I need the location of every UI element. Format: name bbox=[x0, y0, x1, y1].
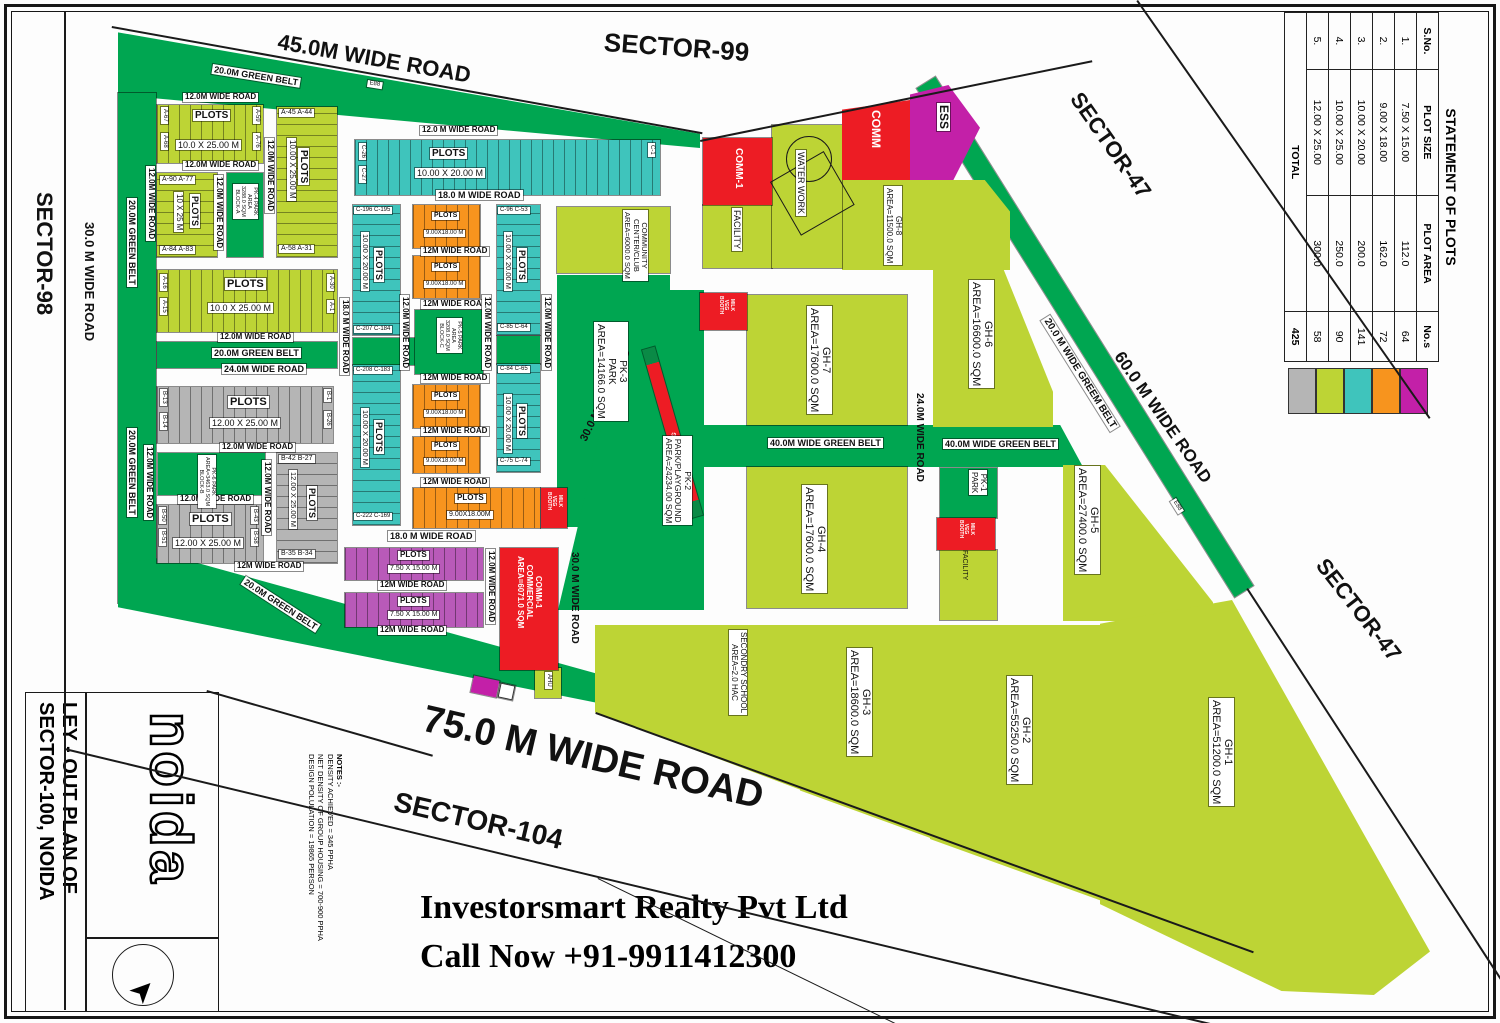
label-a-90-a-77: A-90 A-77 bbox=[160, 176, 195, 184]
cell: 7.50 X 15.00 bbox=[1395, 69, 1417, 195]
label-gh-1: GH-1 AREA=51200.0 SQM bbox=[1209, 698, 1234, 806]
label-sector-47: SECTOR-47 bbox=[1065, 88, 1156, 203]
plots-c-top bbox=[355, 140, 660, 195]
label-milk: MILK VEG BOOTH bbox=[717, 296, 734, 314]
cell: 200.0 bbox=[1351, 195, 1373, 312]
label-9-00x18-00m: 9.00X18.00M bbox=[447, 511, 493, 519]
plot-type-legend bbox=[1288, 368, 1428, 414]
label-b-14: B-14 bbox=[160, 413, 167, 430]
community-center bbox=[557, 207, 670, 273]
cell: 2. bbox=[1373, 13, 1395, 70]
notes-items: DENSITY ACHIEVED = 345 PPHANET DENSITY O… bbox=[307, 754, 335, 1004]
col-s-no: S.No. bbox=[1417, 13, 1439, 70]
cell: 90 bbox=[1329, 312, 1351, 362]
label-10-00-x-20-00-m: 10.00 X 20.00 M bbox=[415, 168, 485, 178]
label-9-00x18-00-m: 9.00X18.00 M bbox=[424, 230, 465, 237]
cell: 10.00 X 25.00 bbox=[1329, 69, 1351, 195]
watermark-company: Investorsmart Realty Pvt Ltd bbox=[420, 883, 848, 932]
cell: 250.0 bbox=[1329, 195, 1351, 312]
label-10-x-25-m: 10 X 25 M bbox=[174, 192, 183, 232]
label-20-0m-green-belt: 20.0M GREEN BELT bbox=[127, 198, 137, 287]
label-c-75-c-74: C-75 C-74 bbox=[498, 458, 530, 465]
label-12m-wide-road: 12M WIDE ROAD bbox=[421, 300, 489, 309]
label-b-35-b-34: B-35 B-34 bbox=[279, 550, 315, 558]
label-9-00x18-00-m: 9.00X18.00 M bbox=[424, 281, 465, 288]
cell: 3. bbox=[1351, 13, 1373, 70]
label-c-84-c-65: C-84 C-65 bbox=[498, 366, 530, 373]
label-12-00-x-25-00-m: 12.00 X 25.00 M bbox=[289, 470, 297, 529]
label-10-00-x-20-00-m: 10.00 X 20.00 M bbox=[504, 232, 512, 291]
label-40-0m-wide-green-belt: 40.0M WIDE GREEN BELT bbox=[943, 439, 1058, 449]
label-gh-7: GH-7 AREA=17600.0 SQM bbox=[807, 306, 832, 414]
label-12m-wide-road: 12M WIDE ROAD bbox=[421, 427, 489, 436]
gh-4 bbox=[747, 467, 907, 608]
label-gh-4: GH-4 AREA=17600.0 SQM bbox=[802, 485, 827, 593]
label-a-1: A-1 bbox=[327, 300, 334, 313]
label-a-16: A-16 bbox=[160, 274, 167, 291]
label-sector-104: SECTOR-104 bbox=[391, 786, 566, 855]
label-b-50: B-50 bbox=[159, 507, 166, 524]
table-row: 1.7.50 X 15.00112.064 bbox=[1395, 13, 1417, 362]
label-10-00-x-20-00-m: 10.00 X 20.00 M bbox=[361, 232, 369, 291]
label-10-00-x-20-00-m: 10.00 X 20.00 M bbox=[504, 394, 512, 453]
label-12-0m-wide-road: 12.0M WIDE ROAD bbox=[183, 93, 258, 102]
plots-table: S.No.PLOT SIZEPLOT AREANo.s 1.7.50 X 15.… bbox=[1284, 12, 1439, 362]
label-12-0-m-wide-road: 12.0 M WIDE ROAD bbox=[420, 126, 497, 135]
label-c-222-c-169: C-222 C-169 bbox=[354, 513, 392, 520]
label-c-1: C-1 bbox=[648, 143, 655, 157]
label-c-85-c-64: C-85 C-64 bbox=[498, 324, 530, 331]
label-gh-3: GH-3 AREA=18600.0 SQM bbox=[847, 648, 872, 756]
label-plots: PLOTS bbox=[432, 442, 459, 450]
label-plots: PLOTS bbox=[225, 278, 266, 290]
cell: 10.00 X 20.00 bbox=[1351, 69, 1373, 195]
label-plots: PLOTS bbox=[190, 194, 200, 228]
label-12-00-x-25-00-m: 12.00 X 25.00 M bbox=[210, 418, 280, 428]
label-plots: PLOTS bbox=[517, 248, 527, 282]
label-plots: PLOTS bbox=[517, 404, 527, 438]
label-c-196-c-195: C-196 C-195 bbox=[354, 207, 392, 214]
noida-logo-box bbox=[85, 692, 219, 939]
label-comm: COMM bbox=[869, 110, 882, 148]
label-30-0-m-wide-road: 30.0 M WIDE ROAD bbox=[81, 222, 96, 341]
label-a-59: A-59 bbox=[253, 107, 260, 124]
label-a-45-a-44: A-45 A-44 bbox=[279, 109, 314, 117]
label-12-0m-wide-road: 12.0M WIDE ROAD bbox=[486, 549, 495, 624]
label-b-58: B-58 bbox=[251, 529, 258, 546]
col-plot-area: PLOT AREA bbox=[1417, 195, 1439, 312]
legend-swatch-1 bbox=[1316, 368, 1344, 414]
legend-swatch-3 bbox=[1372, 368, 1400, 414]
label-12-0m-wide-road: 12.0M WIDE ROAD bbox=[542, 295, 551, 370]
label-ahu: AHU bbox=[545, 672, 552, 689]
notes-block: NOTES :- DENSITY ACHIEVED = 345 PPHANET … bbox=[307, 754, 345, 1004]
label-40-0m-wide-green-belt: 40.0M WIDE GREEN BELT bbox=[768, 438, 883, 448]
label-plots: PLOTS bbox=[374, 420, 384, 454]
cell: 1. bbox=[1395, 13, 1417, 70]
label-a-67: A-67 bbox=[161, 107, 168, 124]
label-20-0m-green-belt: 20.0M GREEN BELT bbox=[127, 428, 137, 517]
label-12-0m-wide-road: 12.0M WIDE ROAD bbox=[214, 175, 223, 250]
label-gh-2: GH-2 AREA=55250.0 SQM bbox=[1007, 676, 1032, 784]
label-24-0m-wide-road: 24.0M WIDE ROAD bbox=[222, 364, 306, 374]
label-plots: PLOTS bbox=[398, 597, 429, 606]
label-plots: PLOTS bbox=[374, 248, 384, 282]
facility-s bbox=[940, 550, 997, 620]
label-b-43: B-43 bbox=[251, 507, 258, 524]
note-item: NET DENSITY OF GROUP HOUSING = 700-900 P… bbox=[316, 754, 325, 1004]
label-b-26: B-26 bbox=[324, 411, 331, 428]
label-c-27: C-27 bbox=[359, 166, 366, 183]
label-facility: FACILITY bbox=[960, 550, 968, 580]
label-b-1: B-1 bbox=[324, 389, 331, 402]
label-plots: PLOTS bbox=[430, 148, 467, 159]
label-plots: PLOTS bbox=[398, 551, 429, 560]
label-pk-1: PK-1 PARK bbox=[969, 470, 987, 495]
edge-title-block bbox=[207, 690, 433, 756]
label-pk-6-park: PK-6 PARK AREA=3463.0 SQM BLOCK-B bbox=[198, 455, 216, 508]
label-9-00x18-00-m: 9.00X18.00 M bbox=[424, 410, 465, 417]
label-c-26: C-26 bbox=[359, 143, 366, 160]
notes-heading: NOTES :- bbox=[335, 754, 344, 1004]
cell: 112.0 bbox=[1395, 195, 1417, 312]
label-pk-3: PK-3 PARK AREA=14166.0 SQM bbox=[594, 322, 628, 421]
note-item: DESIGN POLULATION = 19865 PERSON bbox=[307, 754, 316, 1004]
layout-plan-canvas: STATEMENT OF PLOTS S.No.PLOT SIZEPLOT AR… bbox=[0, 0, 1500, 1023]
label-gh-5: GH-5 AREA=27400.0 SQM bbox=[1075, 466, 1100, 574]
label-a-68: A-68 bbox=[161, 133, 168, 150]
label-c-207-c-184: C-207 C-184 bbox=[354, 326, 392, 333]
label-facility: FACILITY bbox=[732, 208, 742, 251]
label-sector-99: SECTOR-99 bbox=[603, 28, 750, 67]
label-ess: ESS bbox=[937, 103, 950, 131]
label-a-76: A-76 bbox=[253, 133, 260, 150]
plots-a3 bbox=[157, 173, 217, 257]
label-10-00-x-25-00-m: 10.00 X 25.00 M bbox=[287, 138, 296, 201]
label-12m-wide-road: 12M WIDE ROAD bbox=[421, 478, 489, 487]
label-7-50-x-15-00-m: 7.50 X 15.00 M bbox=[388, 565, 439, 573]
label-milk: MILK VEG BOOTH bbox=[545, 492, 562, 510]
label-18-0-m-wide-road: 18.0 M WIDE ROAD bbox=[388, 531, 475, 541]
label-pk-2: PK-2 PARK/PLAYGROUND AREA=24234.00 SQM bbox=[663, 436, 692, 525]
cell: 58 bbox=[1307, 312, 1329, 362]
label-plots: PLOTS bbox=[455, 494, 486, 503]
label-a-30: A-30 bbox=[327, 274, 334, 291]
cell: 12.00 X 25.00 bbox=[1307, 69, 1329, 195]
table-title: STATEMENT OF PLOTS bbox=[1439, 12, 1463, 362]
label-secondry-school: SECONDRY SCHOOL AREA=2.0 HAC bbox=[729, 630, 747, 715]
label-plots: PLOTS bbox=[228, 396, 269, 408]
label-plots: PLOTS bbox=[298, 148, 309, 185]
cell: 64 bbox=[1395, 312, 1417, 362]
label-plots: PLOTS bbox=[432, 263, 459, 271]
table-row: 5.12.00 X 25.00300.058 bbox=[1307, 13, 1329, 362]
watermark-phone: Call Now +91-9911412300 bbox=[420, 932, 848, 981]
label-plots: PLOTS bbox=[432, 392, 459, 400]
label-c-96-c-53: C-96 C-53 bbox=[498, 207, 530, 214]
label-a-84-a-83: A-84 A-83 bbox=[160, 246, 195, 254]
label-a-58-a-31: A-58 A-31 bbox=[279, 245, 314, 253]
label-12-0m-wide-road: 12.0M WIDE ROAD bbox=[146, 166, 155, 241]
label-b-42-b-27: B-42 B-27 bbox=[279, 455, 315, 463]
cell: 162.0 bbox=[1373, 195, 1395, 312]
label-12m-wide-road: 12M WIDE ROAD bbox=[235, 562, 303, 571]
label-12-0m-wide-road: 12.0M WIDE ROAD bbox=[265, 138, 274, 213]
label-12-0m-wide-road: 12.0M WIDE ROAD bbox=[400, 295, 409, 370]
label-plots: PLOTS bbox=[193, 110, 230, 121]
legend-swatch-4 bbox=[1400, 368, 1428, 414]
cell: 5. bbox=[1307, 13, 1329, 70]
green-strip-c-right bbox=[497, 336, 540, 364]
label-12-00-x-25-00-m: 12.00 X 25.00 M bbox=[173, 538, 243, 548]
label-sector-47: SECTOR-47 bbox=[1311, 554, 1406, 666]
label-c-208-c-183: C-208 C-183 bbox=[354, 367, 392, 374]
label-12m-wide-road: 12M WIDE ROAD bbox=[378, 581, 446, 590]
label-24-0m-wide-road: 24.0M WIDE ROAD bbox=[914, 393, 925, 482]
label-10-0-x-25-00-m: 10.0 X 25.00 M bbox=[176, 140, 241, 150]
label-sector-98: SECTOR-98 bbox=[31, 192, 56, 315]
label-b-51: B-51 bbox=[159, 529, 166, 546]
statement-of-plots-table: STATEMENT OF PLOTS S.No.PLOT SIZEPLOT AR… bbox=[1277, 12, 1463, 362]
label-12m-wide-road: 12M WIDE ROAD bbox=[421, 247, 489, 256]
label-12-0m-wide-road: 12.0M WIDE ROAD bbox=[144, 445, 153, 520]
label-plots: PLOTS bbox=[432, 212, 459, 220]
legend-swatch-0 bbox=[1288, 368, 1316, 414]
gh-8 bbox=[842, 180, 1010, 270]
label-12m-wide-road: 12M WIDE ROAD bbox=[421, 374, 489, 383]
cell: 300.0 bbox=[1307, 195, 1329, 312]
col-plot-size: PLOT SIZE bbox=[1417, 69, 1439, 195]
note-item: DENSITY ACHIEVED = 345 PPHA bbox=[325, 754, 334, 1004]
label-9-00x18-00-m: 9.00X18.00 M bbox=[424, 458, 465, 465]
label-12m-wide-road: 12M WIDE ROAD bbox=[378, 626, 446, 635]
label-a-15: A-15 bbox=[160, 298, 167, 315]
label-comm-1: COMM-1 COMMERCIAL AREA=6071.0 SQM bbox=[515, 556, 542, 628]
label-12-0m-wide-road: 12.0M WIDE ROAD bbox=[220, 443, 295, 452]
label-water-work: WATER WORK bbox=[796, 150, 806, 216]
label-10-0-x-25-00-m: 10.0 X 25.00 M bbox=[208, 303, 273, 313]
label-12-0m-wide-road: 12.0M WIDE ROAD bbox=[218, 333, 293, 342]
label-pk-4-park: PK-4 PARK AREA 3288.0 SQM BLOCK-A bbox=[233, 184, 258, 219]
table-row: 4.10.00 X 25.00250.090 bbox=[1329, 13, 1351, 362]
legend-swatch-2 bbox=[1344, 368, 1372, 414]
label-12-0m-wide-road: 12.0M WIDE ROAD bbox=[482, 295, 491, 370]
table-header-row: S.No.PLOT SIZEPLOT AREANo.s bbox=[1417, 13, 1439, 362]
total-value: 425 bbox=[1285, 312, 1307, 362]
label-pk-5-park: PK-5 PARK AREA 3208.0 SQM BLOCK-C bbox=[437, 318, 462, 353]
col-no-s: No.s bbox=[1417, 312, 1439, 362]
label-gh-6: GH-6 AREA=16600.0 SQM bbox=[969, 280, 994, 388]
label-18-0-m-wide-road: 18.0 M WIDE ROAD bbox=[436, 190, 523, 200]
label-comm-1: COMM-1 bbox=[733, 148, 744, 189]
mini-white-box bbox=[498, 683, 516, 701]
ley-text-box bbox=[25, 692, 87, 1012]
table-row: 2.9.00 X 18.00162.072 bbox=[1373, 13, 1395, 362]
label-plots: PLOTS bbox=[307, 486, 317, 520]
label-30-0-m-wide-road: 30.0 M WIDE ROAD bbox=[569, 552, 580, 644]
label-18-0-m-wide-road: 18.0 M WIDE ROAD bbox=[340, 298, 349, 375]
label-20-0m-green-belt: 20.0M GREEN BELT bbox=[212, 348, 301, 358]
label-community: COMMUNITY CENTER/CLUB AREA=6000.0 SQM bbox=[623, 210, 648, 281]
cell: 9.00 X 18.00 bbox=[1373, 69, 1395, 195]
table-total-row: TOTAL 425 bbox=[1285, 13, 1307, 362]
label-b-13: B-13 bbox=[160, 389, 167, 406]
total-label: TOTAL bbox=[1285, 13, 1307, 312]
cell: 4. bbox=[1329, 13, 1351, 70]
label-gh-8: GH-8 AREA=11500.0 SQM bbox=[884, 186, 902, 265]
label-milk: MILK VEG BOOTH bbox=[957, 520, 974, 538]
watermark: Investorsmart Realty Pvt Ltd Call Now +9… bbox=[420, 883, 848, 982]
label-12-0m-wide-road: 12.0M WIDE ROAD bbox=[183, 161, 258, 170]
label-7-50-x-15-00-m: 7.50 X 15.00 M bbox=[388, 611, 439, 619]
label-plots: PLOTS bbox=[190, 513, 231, 525]
label-10-00-x-20-00-m: 10.00 X 20.00 M bbox=[361, 408, 369, 467]
label-12-0m-wide-road: 12.0M WIDE ROAD bbox=[262, 460, 271, 535]
